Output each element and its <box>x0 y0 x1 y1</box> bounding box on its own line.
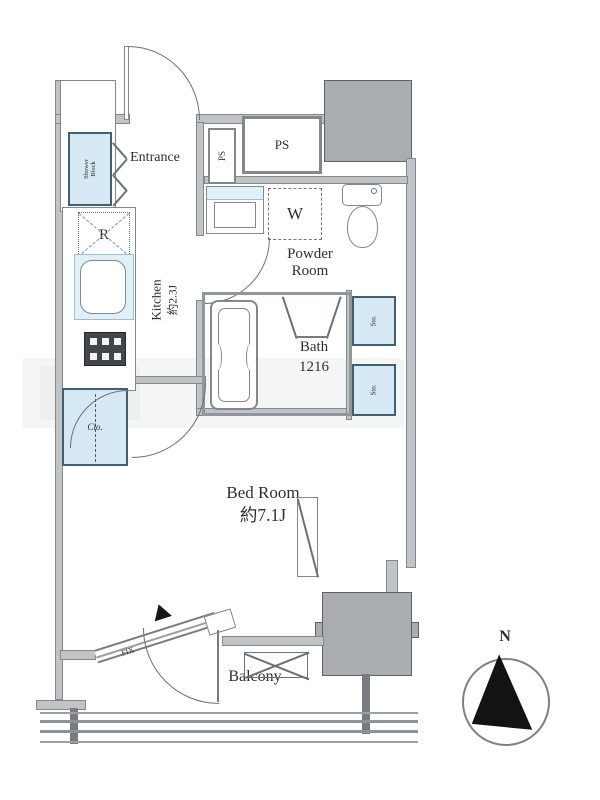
wall-fix-left-stub <box>60 650 96 660</box>
shower-block-label-2: Block <box>90 161 97 177</box>
toilet-tank <box>342 184 382 206</box>
front-door-swing-arc <box>128 46 200 120</box>
balcony-rail <box>40 712 418 714</box>
wall-bedroom-south <box>222 636 324 646</box>
balcony-rail <box>40 720 418 723</box>
kitchen-label: Kitchen 約2.3J <box>136 240 194 360</box>
toilet-bowl <box>347 206 378 248</box>
wall-balcony-left-plate <box>36 700 86 710</box>
bathtub-waist-right <box>246 344 254 370</box>
compass-north-label: N <box>492 628 518 646</box>
storage-upper-box: Sto. <box>352 296 396 346</box>
ps-large-box: PS <box>242 116 322 174</box>
wall-bedroom-door-head <box>128 376 206 384</box>
balcony-door-swing-arc <box>143 628 219 704</box>
bathtub-waist-left <box>214 344 222 370</box>
kitchen-sink <box>80 260 126 314</box>
storage-lower-box: Sto. <box>352 364 396 416</box>
balcony-door-leaf <box>217 630 219 702</box>
direction-triangle-marker <box>150 602 172 622</box>
balcony-rail <box>40 741 418 743</box>
ps-small-box: PS <box>208 128 236 184</box>
ps-small-label: PS <box>217 151 227 161</box>
floor-plan: Shower Block Entrance PS PS W Powder Roo… <box>0 0 600 800</box>
washing-machine-label: W <box>287 204 303 224</box>
wall-right-outer <box>406 158 416 568</box>
ps-large-label: PS <box>275 137 289 153</box>
pillar-top-right <box>324 80 412 162</box>
toilet-flush-button <box>371 188 377 194</box>
shower-block-box: Shower Block <box>68 132 112 206</box>
bedroom-door-swing-arc <box>132 384 206 458</box>
bath-label: Bath 1216 <box>282 338 346 377</box>
balcony-post-right <box>362 674 370 734</box>
wall-right-lower-stub <box>386 560 398 596</box>
storage-upper-label: Sto. <box>370 315 378 326</box>
washing-machine-box: W <box>268 188 322 240</box>
powder-room-label: Powder Room <box>262 246 358 280</box>
stove <box>84 332 126 366</box>
pillar-bottom-right <box>322 592 412 676</box>
entrance-label: Entrance <box>110 150 200 166</box>
washbasin-bowl <box>214 202 256 228</box>
pillar-nub-right <box>411 622 419 638</box>
storage-lower-label: Sto. <box>370 384 378 395</box>
wall-hall-upper <box>196 122 204 236</box>
balcony-rail <box>40 730 418 733</box>
